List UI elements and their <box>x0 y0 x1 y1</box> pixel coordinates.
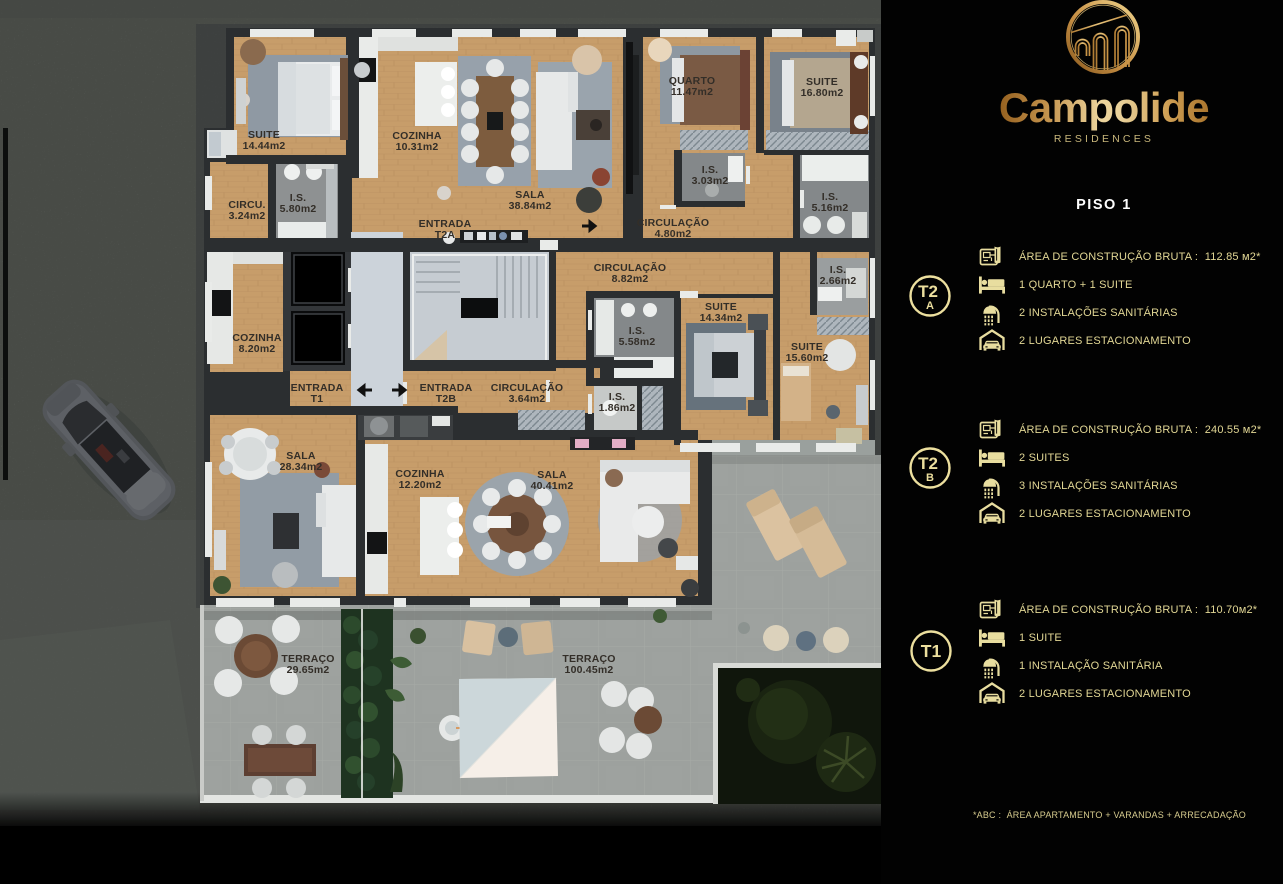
svg-text:3.64m2: 3.64m2 <box>509 393 546 405</box>
svg-text:T1: T1 <box>311 393 324 405</box>
svg-text:29.65m2: 29.65m2 <box>287 664 330 676</box>
svg-text:3.03m2: 3.03m2 <box>692 175 729 187</box>
svg-text:28.34m2: 28.34m2 <box>280 461 323 473</box>
svg-text:38.84m2: 38.84m2 <box>509 200 552 212</box>
svg-text:8.20m2: 8.20m2 <box>239 343 276 355</box>
svg-text:15.60m2: 15.60m2 <box>786 352 829 364</box>
svg-text:10.31m2: 10.31m2 <box>396 141 439 153</box>
svg-text:2.66m2: 2.66m2 <box>820 275 857 287</box>
svg-text:3.24m2: 3.24m2 <box>229 210 266 222</box>
svg-text:1.86m2: 1.86m2 <box>599 402 636 414</box>
svg-text:T2A: T2A <box>435 229 456 241</box>
svg-text:T1: T1 <box>921 641 942 661</box>
svg-text:40.41m2: 40.41m2 <box>531 480 574 492</box>
svg-text:14.34m2: 14.34m2 <box>700 312 743 324</box>
svg-text:8.82m2: 8.82m2 <box>612 273 649 285</box>
svg-text:12.20m2: 12.20m2 <box>399 479 442 491</box>
svg-text:T2B: T2B <box>436 393 457 405</box>
svg-text:5.80m2: 5.80m2 <box>280 203 317 215</box>
svg-text:14.44m2: 14.44m2 <box>243 140 286 152</box>
svg-text:B: B <box>926 472 934 484</box>
svg-text:A: A <box>926 300 934 312</box>
svg-text:T2: T2 <box>918 282 938 301</box>
svg-text:T2: T2 <box>918 454 938 473</box>
svg-text:100.45m2: 100.45m2 <box>565 664 614 676</box>
svg-text:16.80m2: 16.80m2 <box>801 87 844 99</box>
svg-text:11.47m2: 11.47m2 <box>671 86 713 98</box>
svg-text:5.16m2: 5.16m2 <box>812 202 849 214</box>
svg-text:5.58m2: 5.58m2 <box>619 336 656 348</box>
svg-text:4.80m2: 4.80m2 <box>655 228 692 240</box>
